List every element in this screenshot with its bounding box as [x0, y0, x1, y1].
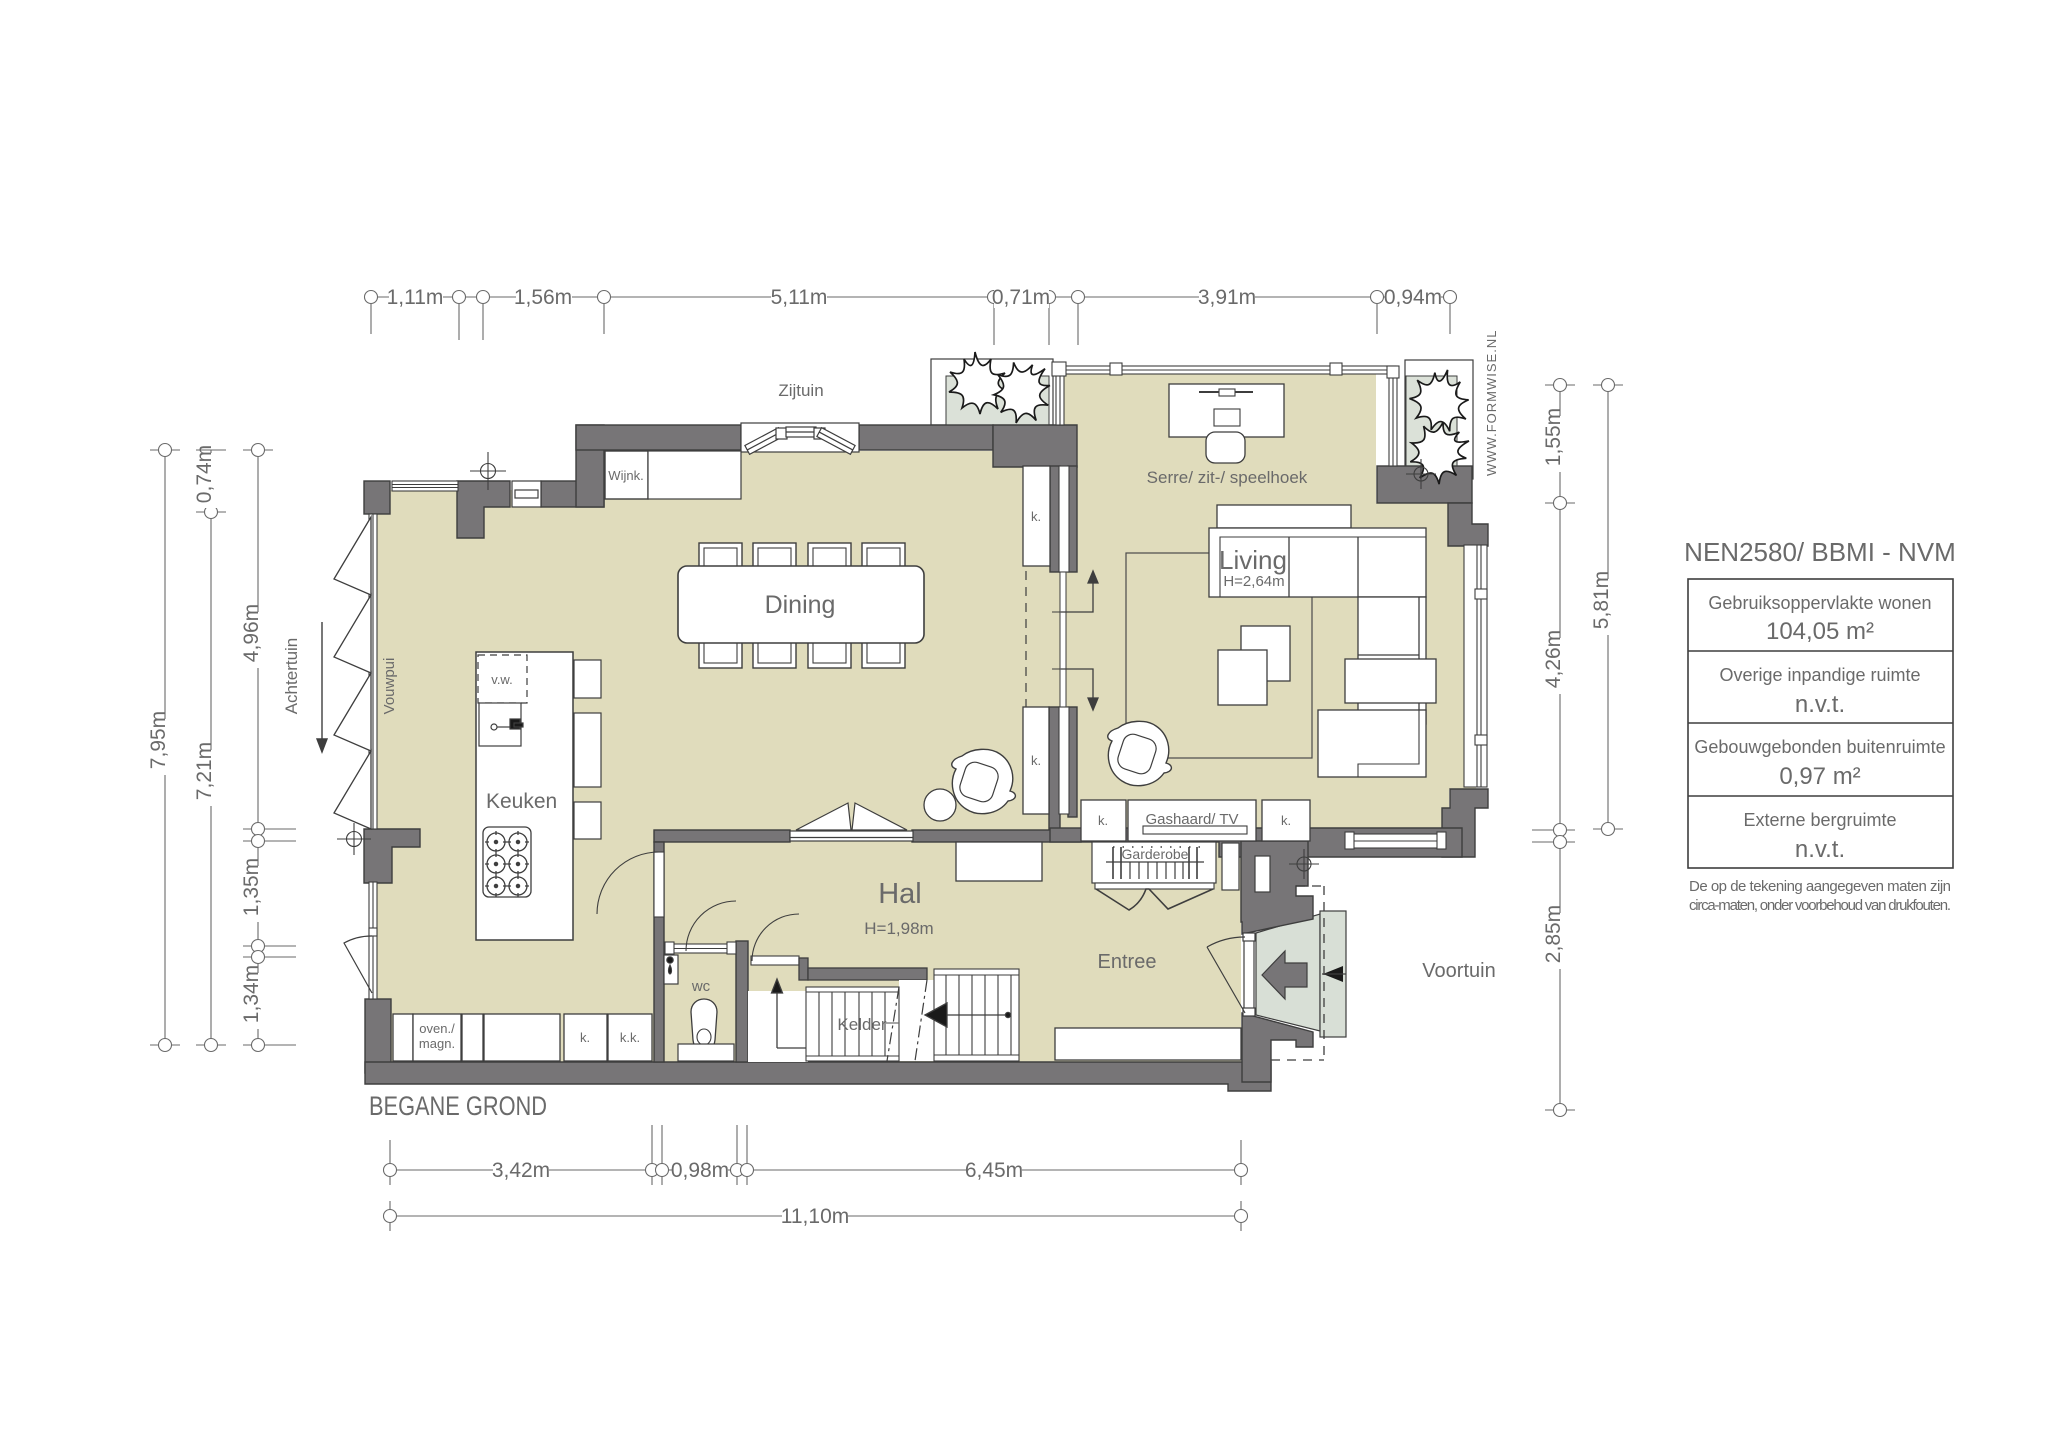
- svg-text:k.: k.: [580, 1030, 590, 1045]
- svg-text:5,81m: 5,81m: [1590, 571, 1613, 629]
- svg-text:5,11m: 5,11m: [771, 286, 828, 309]
- svg-text:104,05 m²: 104,05 m²: [1766, 618, 1874, 645]
- svg-text:k.: k.: [1031, 509, 1041, 524]
- svg-text:De op de tekening aangegeven m: De op de tekening aangegeven maten zijn: [1689, 878, 1951, 895]
- svg-text:Serre/ zit-/ speelhoek: Serre/ zit-/ speelhoek: [1147, 468, 1308, 487]
- svg-text:magn.: magn.: [419, 1036, 455, 1051]
- svg-text:7,21m: 7,21m: [193, 742, 216, 800]
- svg-text:H=2,64m: H=2,64m: [1223, 573, 1284, 590]
- svg-text:4,26m: 4,26m: [1542, 630, 1565, 688]
- svg-text:v.w.: v.w.: [491, 672, 512, 687]
- svg-text:4,96m: 4,96m: [240, 604, 263, 662]
- svg-text:3,91m: 3,91m: [1198, 286, 1256, 309]
- svg-text:1,35m: 1,35m: [240, 858, 263, 916]
- svg-text:Vouwpui: Vouwpui: [381, 658, 398, 715]
- svg-text:oven./: oven./: [419, 1021, 455, 1036]
- svg-text:Wijnk.: Wijnk.: [608, 468, 643, 483]
- svg-text:Externe bergruimte: Externe bergruimte: [1743, 810, 1896, 830]
- svg-text:WWW.FORMWISE.NL: WWW.FORMWISE.NL: [1484, 330, 1499, 476]
- svg-text:Achtertuin: Achtertuin: [282, 638, 301, 715]
- svg-text:Kelder: Kelder: [837, 1015, 886, 1034]
- svg-text:Zijtuin: Zijtuin: [778, 381, 823, 400]
- svg-text:Garderobe: Garderobe: [1122, 846, 1189, 862]
- svg-text:11,10m: 11,10m: [781, 1205, 850, 1228]
- svg-text:3,42m: 3,42m: [492, 1159, 550, 1182]
- svg-text:circa-maten, onder voorbehoud: circa-maten, onder voorbehoud van drukfo…: [1689, 897, 1951, 914]
- svg-text:Keuken: Keuken: [486, 790, 557, 813]
- svg-text:BEGANE GROND: BEGANE GROND: [369, 1091, 547, 1121]
- svg-text:k.: k.: [1098, 813, 1108, 828]
- svg-text:Voortuin: Voortuin: [1422, 960, 1495, 982]
- svg-text:Gebouwgebonden buitenruimte: Gebouwgebonden buitenruimte: [1694, 737, 1945, 757]
- svg-text:H=1,98m: H=1,98m: [864, 919, 933, 938]
- svg-text:NEN2580/ BBMI - NVM: NEN2580/ BBMI - NVM: [1684, 537, 1956, 567]
- svg-text:Entree: Entree: [1098, 951, 1157, 973]
- svg-text:k.k.: k.k.: [620, 1030, 640, 1045]
- svg-text:2,85m: 2,85m: [1542, 905, 1565, 963]
- svg-text:n.v.t.: n.v.t.: [1795, 836, 1845, 863]
- svg-text:Living: Living: [1219, 545, 1287, 575]
- svg-text:n.v.t.: n.v.t.: [1795, 691, 1845, 718]
- svg-text:0,98m: 0,98m: [671, 1159, 729, 1182]
- svg-text:1,11m: 1,11m: [387, 286, 444, 309]
- svg-text:6,45m: 6,45m: [965, 1159, 1023, 1182]
- svg-text:1,56m: 1,56m: [514, 286, 572, 309]
- svg-text:Dining: Dining: [765, 591, 836, 619]
- svg-text:Hal: Hal: [878, 878, 922, 910]
- svg-text:7,95m: 7,95m: [147, 711, 170, 769]
- svg-text:Gebruiksoppervlakte wonen: Gebruiksoppervlakte wonen: [1708, 593, 1931, 613]
- svg-text:0,94m: 0,94m: [1384, 286, 1442, 309]
- svg-text:0,71m: 0,71m: [992, 286, 1050, 309]
- svg-text:0,97 m²: 0,97 m²: [1779, 763, 1860, 790]
- svg-text:0,74m: 0,74m: [193, 445, 216, 503]
- svg-text:wc: wc: [691, 978, 711, 995]
- svg-text:Gashaard/ TV: Gashaard/ TV: [1145, 811, 1238, 828]
- svg-text:Overige inpandige ruimte: Overige inpandige ruimte: [1719, 665, 1920, 685]
- svg-text:k.: k.: [1281, 813, 1291, 828]
- svg-text:k.: k.: [1031, 753, 1041, 768]
- svg-text:1,34m: 1,34m: [240, 965, 263, 1023]
- svg-text:1,55m: 1,55m: [1542, 408, 1565, 466]
